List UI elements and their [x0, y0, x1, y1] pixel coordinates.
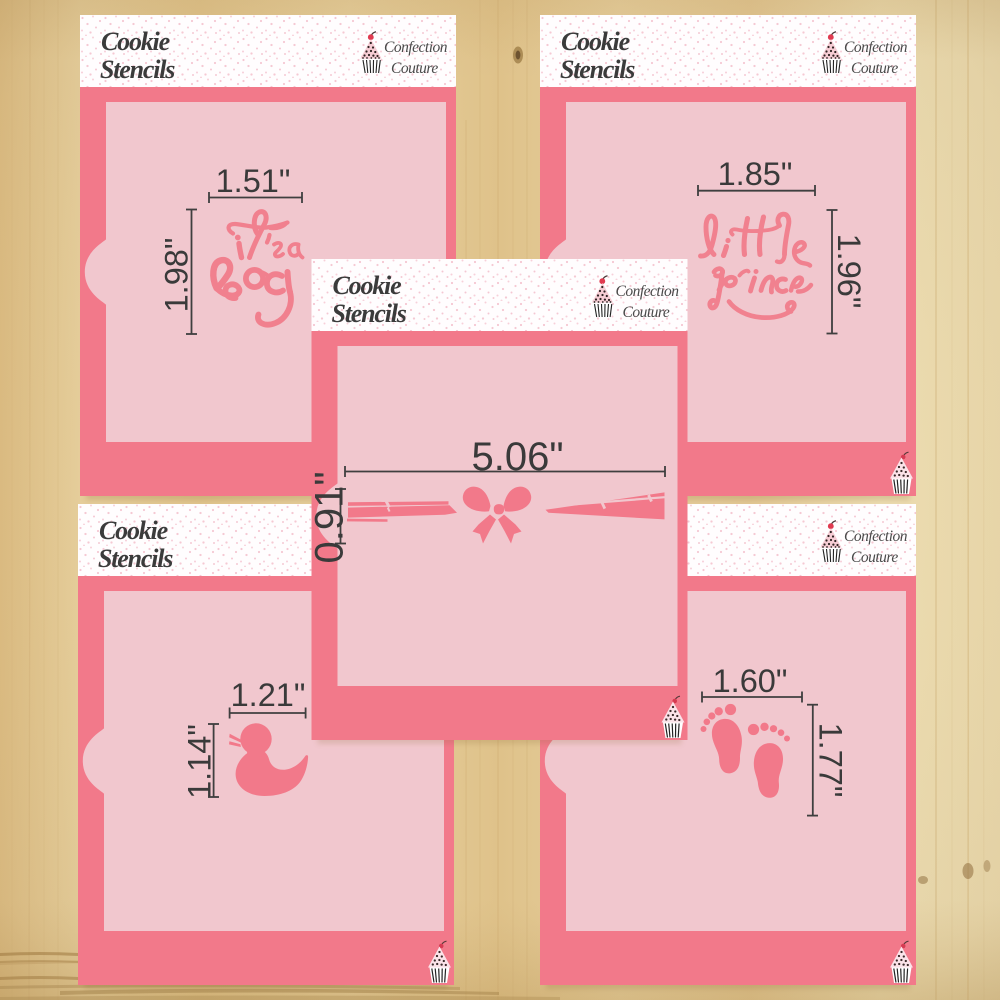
- svg-text:1.98": 1.98": [159, 238, 195, 313]
- svg-text:0.91": 0.91": [308, 471, 352, 563]
- svg-text:1.21": 1.21": [231, 677, 306, 713]
- svg-text:1.85": 1.85": [718, 156, 793, 192]
- svg-text:1.96": 1.96": [831, 234, 867, 309]
- svg-text:1.77": 1.77": [812, 723, 848, 798]
- svg-text:1.60": 1.60": [713, 663, 788, 699]
- svg-text:1.51": 1.51": [216, 163, 291, 199]
- svg-text:1.14": 1.14": [182, 724, 218, 799]
